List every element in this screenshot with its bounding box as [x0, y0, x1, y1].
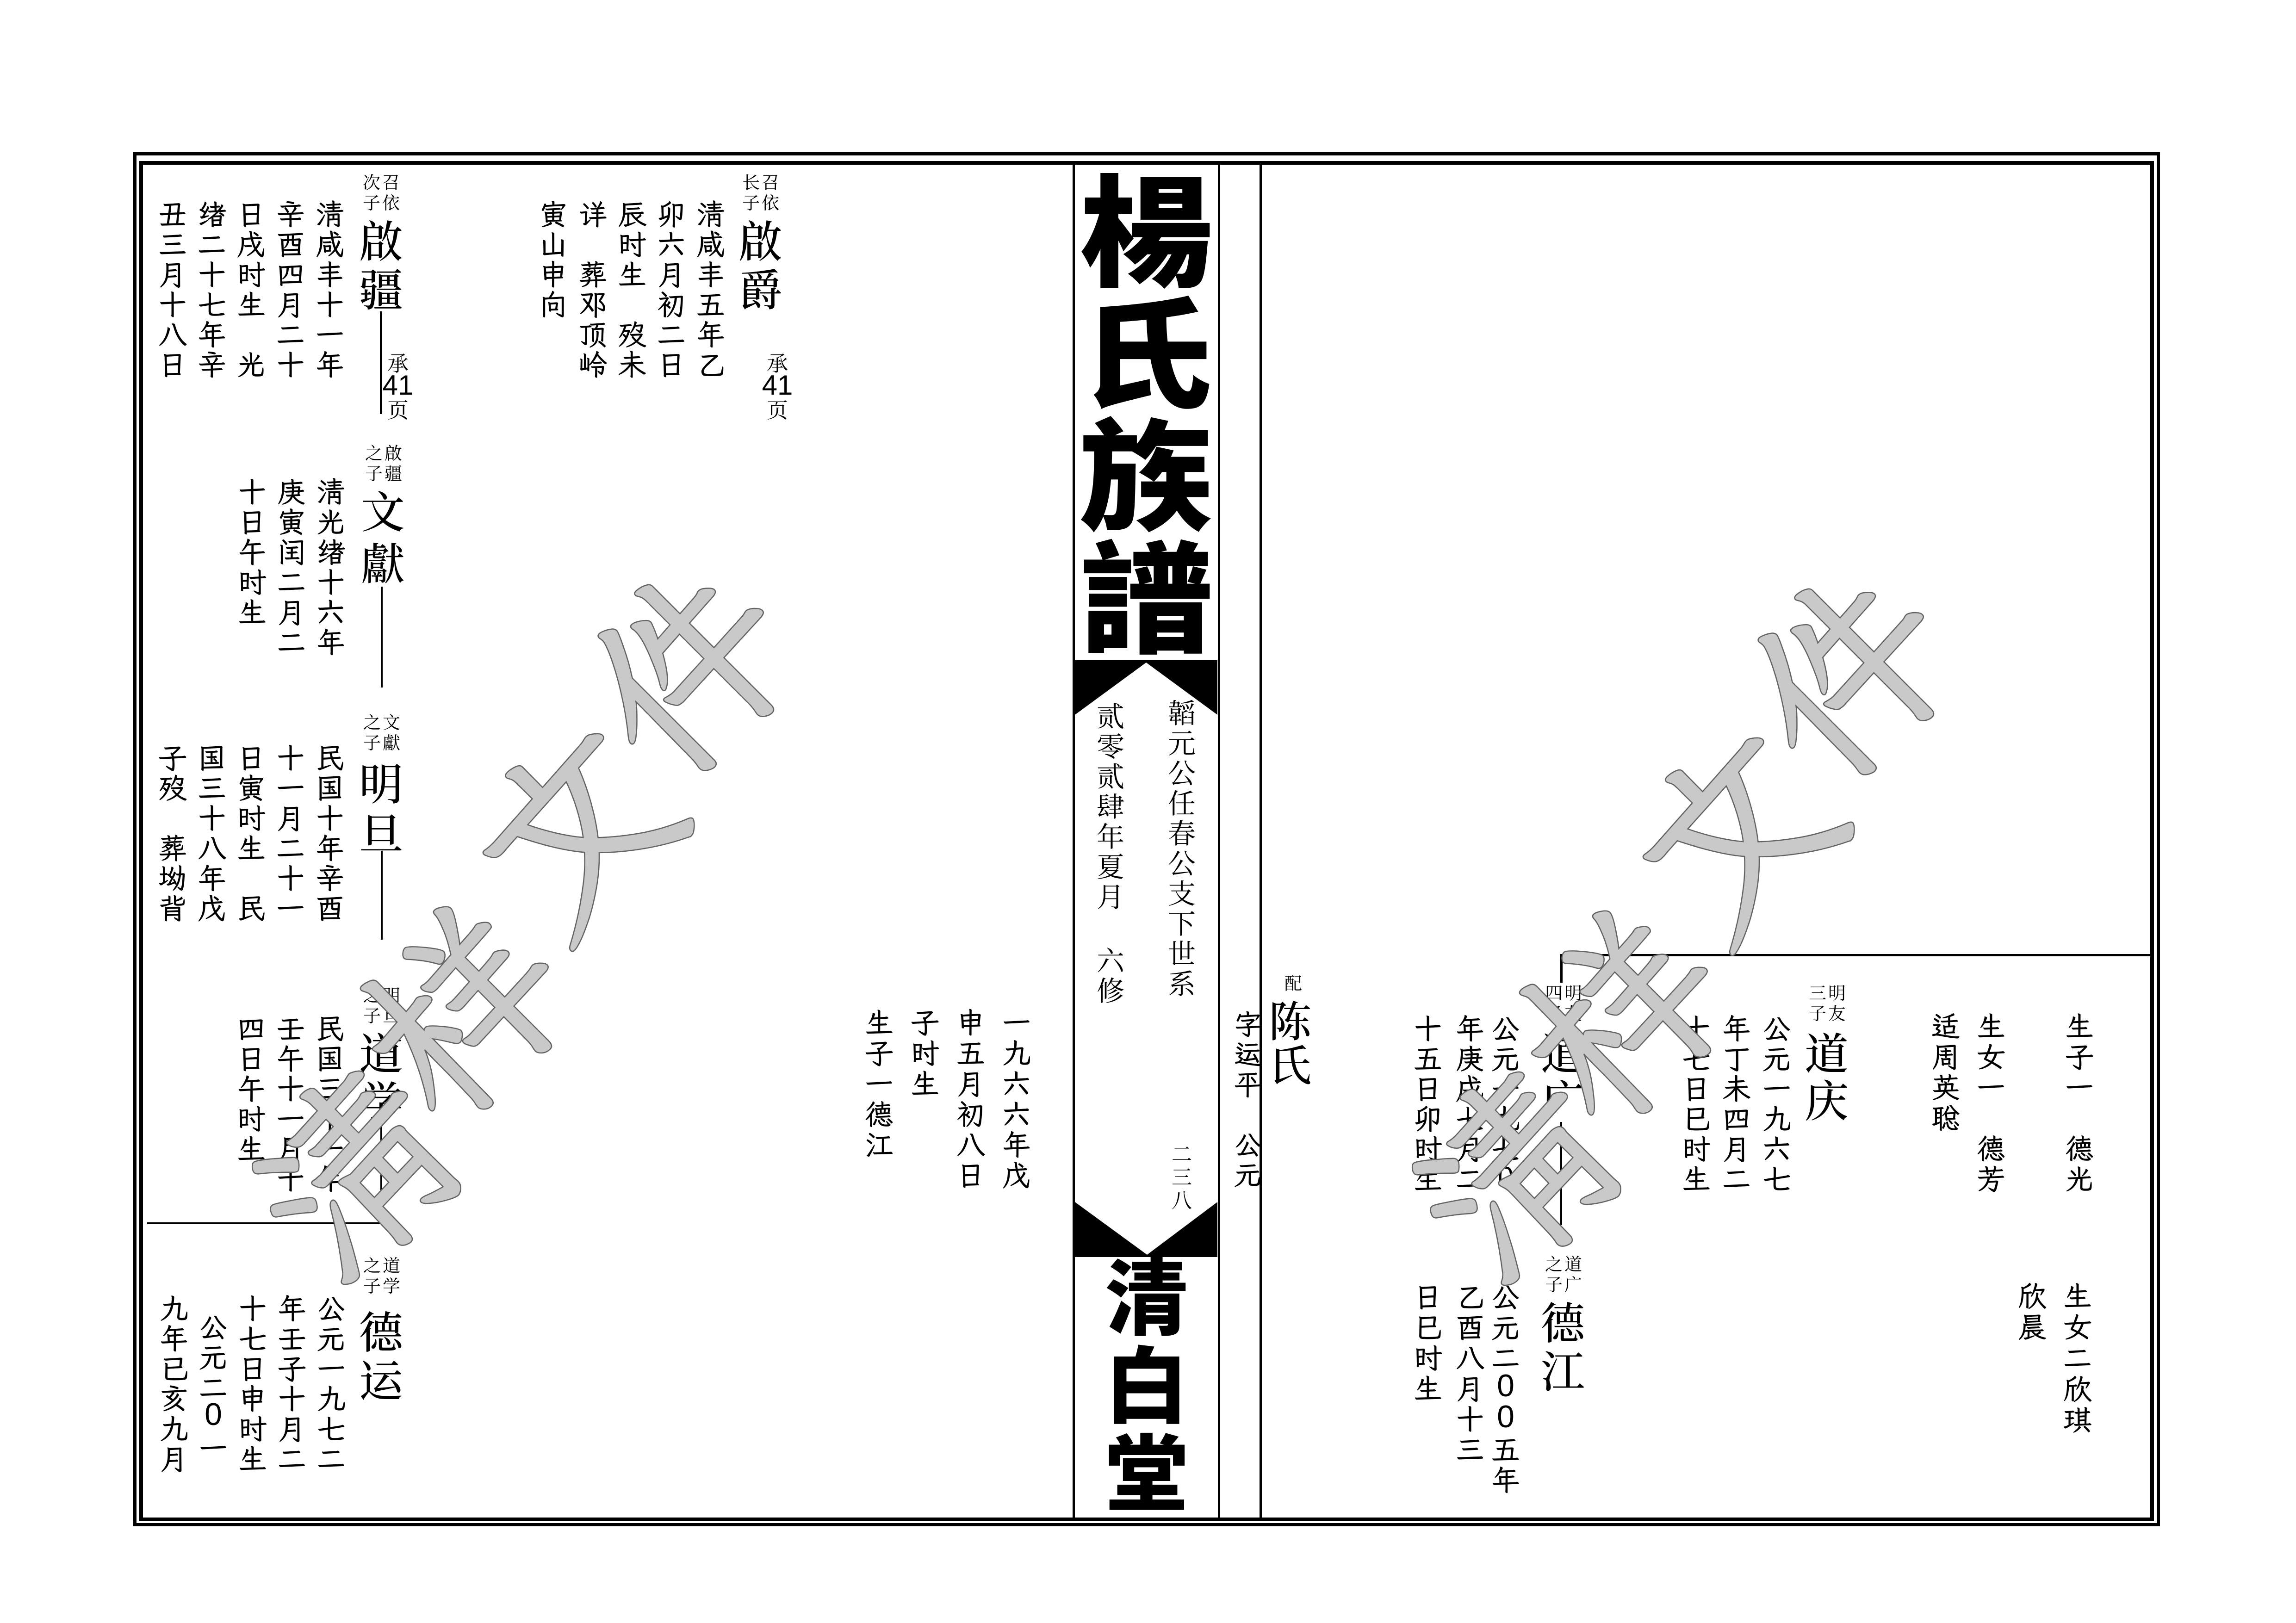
svg-text:41: 41: [762, 370, 793, 401]
svg-text:0: 0: [205, 1397, 222, 1432]
svg-text:41: 41: [383, 370, 414, 401]
svg-text:0: 0: [1497, 1368, 1514, 1403]
svg-text:0: 0: [1497, 1399, 1514, 1434]
